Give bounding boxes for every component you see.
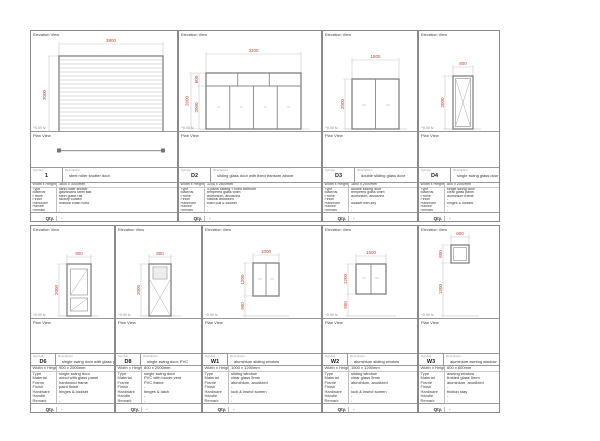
qty-value: - — [205, 216, 211, 221]
door-height-dimension: 2000 — [194, 102, 199, 113]
qty-label: Qty. — [419, 407, 445, 412]
door-code: D6 — [31, 359, 55, 365]
spec-table: Width x Height3200 x 2600mmType4-panel s… — [179, 182, 321, 212]
plan-view-label: Plan View — [33, 320, 51, 325]
floor-level-label: +0.00 lv. — [421, 126, 434, 130]
symbol-row: Symbol W2 Description aluminium sliding … — [323, 353, 417, 365]
plan-view-label: Plan View — [205, 320, 223, 325]
plan-view-cell: Plan View — [31, 318, 114, 353]
panel-door-d6: Elevation View 900 2000 +0.00 lv. Plan V… — [30, 225, 115, 413]
qty-row: Qty. - — [323, 403, 417, 414]
qty-value: - — [445, 407, 451, 412]
width-dimension: 3200 — [248, 48, 259, 53]
spec-label: Width x Height — [323, 366, 349, 371]
symbol-cell: Symbol D2 — [179, 168, 211, 182]
symbol-cell: Symbol D6 — [31, 354, 56, 365]
swing-door-elevation-drawing: 900 2000 — [31, 226, 114, 318]
door-code: D3 — [323, 173, 354, 179]
spec-value: 600 x 600mm — [445, 366, 499, 371]
spec-value: 800 x 2000mm — [445, 183, 499, 187]
plan-view-cell: Plan View — [419, 318, 499, 353]
elevation-view-cell: Elevation View 3200 2600 600 2000 +0.00 … — [179, 31, 321, 131]
elevation-view-cell: Elevation View 900 2000 +0.00 lv. — [31, 226, 114, 318]
panel-window-w1: Elevation View 1000 1200 900 +0.00 lv. P… — [202, 225, 322, 413]
spec-table: Width x Height800 x 2000mmTypesingle swi… — [116, 365, 201, 403]
floor-level-label: +0.00 lv. — [325, 313, 338, 317]
height-dimension: 1200 — [343, 273, 348, 284]
door-code: D4 — [419, 173, 450, 179]
height-dimension: 2000 — [54, 284, 59, 295]
description-cell: Description single swing door, PVC — [141, 354, 201, 365]
window-elevation-drawing: 1000 1200 900 — [203, 226, 321, 318]
width-dimension: 800 — [459, 61, 467, 66]
qty-label: Qty. — [31, 407, 57, 412]
height-dimension: 2000 — [340, 98, 345, 109]
qty-value: - — [57, 216, 63, 221]
plan-view-label: Plan View — [325, 320, 343, 325]
spec-value: 1500 x 1200mm — [349, 366, 417, 371]
spec-value: 1000 x 1200mm — [229, 366, 321, 371]
symbol-row: Symbol D8 Description single swing door,… — [116, 353, 201, 365]
sill-height-dimension: 900 — [240, 302, 245, 310]
plan-view-cell: Plan View — [419, 131, 499, 167]
qty-value: - — [349, 216, 355, 221]
spec-value: 3200 x 2600mm — [205, 183, 321, 187]
plan-view-cell: Plan View — [31, 131, 177, 167]
description-cell: Description aluminium sliding window — [348, 354, 417, 365]
qty-value: - — [445, 216, 451, 221]
door-code: D2 — [179, 173, 210, 179]
floor-level-label: +0.00 lv. — [33, 313, 46, 317]
plan-view-label: Plan View — [181, 133, 199, 138]
panel-door-d8: Elevation View 800 2000 +0.00 lv. Plan V… — [115, 225, 202, 413]
sill-height-dimension: 1500 — [438, 283, 443, 294]
sill-height-dimension: 900 — [343, 301, 348, 309]
height-dimension: 2000 — [136, 284, 141, 295]
width-dimension: 800 — [156, 251, 164, 256]
height-dimension: 2000 — [440, 97, 445, 108]
spec-value: 900 x 2000mm — [57, 366, 114, 371]
symbol-row: Symbol D3 Description double sliding gla… — [323, 167, 417, 182]
height-dimension: 1200 — [240, 274, 245, 285]
panel-door-d2: Elevation View 3200 2600 600 2000 +0.00 … — [178, 30, 322, 222]
door-code: 1 — [31, 173, 62, 179]
qty-row: Qty. - — [203, 403, 321, 414]
pvc-door-elevation-drawing: 800 2000 — [116, 226, 201, 318]
qty-label: Qty. — [116, 407, 142, 412]
spec-table: Width x Height900 x 2000mmTypesingle swi… — [31, 365, 114, 403]
elevation-view-cell: Elevation View 1800 2000 +0.00 lv. — [323, 31, 417, 131]
double-door-elevation-drawing: 1800 2000 — [323, 31, 417, 131]
width-dimension: 1800 — [370, 54, 381, 59]
width-dimension: 600 — [456, 231, 464, 236]
qty-row: Qty. - — [419, 403, 499, 414]
spec-label: Width x Height — [31, 366, 57, 371]
width-dimension: 3800 — [106, 38, 117, 43]
plan-view-cell: Plan View — [203, 318, 321, 353]
panel-window-w3: Elevation View 600 600 1500 +0.00 lv. Pl… — [418, 225, 500, 413]
floor-level-label: +0.00 lv. — [421, 313, 434, 317]
window-elevation-drawing: 600 600 1500 — [419, 226, 499, 318]
door-outline — [149, 264, 171, 316]
width-dimension: 1000 — [261, 249, 272, 254]
spec-label: Width x Height — [179, 183, 205, 187]
door-window-schedule-sheet: Elevation View 3800 3000 +0.00 lv. Plan … — [0, 0, 600, 441]
panel-door-d4: Elevation View 800 2000 +0.00 lv. Plan V… — [418, 30, 500, 222]
qty-row: Qty. - — [323, 212, 417, 223]
symbol-row: Symbol D6 Description single swing door … — [31, 353, 114, 365]
floor-level-label: +0.00 lv. — [325, 126, 338, 130]
symbol-cell: Symbol W2 — [323, 354, 348, 365]
elevation-view-cell: Elevation View 1500 1200 900 +0.00 lv. — [323, 226, 417, 318]
qty-value: - — [229, 407, 235, 412]
plan-jamb-left — [57, 149, 61, 153]
spec-value: 800 x 2000mm — [142, 366, 201, 371]
door-description: single swing door with glass panel — [62, 359, 114, 364]
qty-label: Qty. — [31, 216, 57, 221]
elevation-view-cell: Elevation View 3800 3000 +0.00 lv. — [31, 31, 177, 131]
plan-view-label: Plan View — [421, 320, 439, 325]
spec-table: Width x Height1500 x 1200mmTypesliding w… — [323, 365, 417, 403]
roller-door-plan-drawing — [31, 132, 177, 167]
total-height-dimension: 2600 — [185, 95, 190, 106]
spec-label: Width x Height — [419, 183, 445, 187]
description-cell: Description single swing glass door — [451, 168, 499, 182]
spec-table: Width x Height3800 x 3000mmTypesteel rol… — [31, 182, 177, 212]
qty-label: Qty. — [323, 407, 349, 412]
description-cell: Description double sliding glass door — [355, 168, 417, 182]
elevation-view-cell: Elevation View 600 600 1500 +0.00 lv. — [419, 226, 499, 318]
spec-label: Width x Height — [323, 183, 349, 187]
qty-value: - — [57, 407, 63, 412]
symbol-row: Symbol W3 Description aluminium awning w… — [419, 353, 499, 365]
plan-view-label: Plan View — [118, 320, 136, 325]
qty-label: Qty. — [419, 216, 445, 221]
spec-table: Width x Height800 x 2000mmTypesingle swi… — [419, 182, 499, 212]
qty-value: - — [142, 407, 148, 412]
spec-label: Width x Height — [419, 366, 445, 371]
spec-table: Width x Height1800 x 2000mmTypedouble sl… — [323, 182, 417, 212]
door-description: steel roller shutter door — [69, 173, 177, 178]
plan-door-line — [59, 150, 163, 151]
qty-value: - — [349, 407, 355, 412]
roller-door-elevation-drawing: 3800 3000 — [31, 31, 177, 131]
panel-door-1: Elevation View 3800 3000 +0.00 lv. Plan … — [30, 30, 178, 222]
elevation-view-cell: Elevation View 800 2000 +0.00 lv. — [116, 226, 201, 318]
qty-row: Qty. - — [116, 403, 201, 414]
spec-label: Width x Height — [31, 183, 57, 187]
single-door-elevation-drawing: 800 2000 — [419, 31, 499, 131]
window-code: W1 — [203, 359, 227, 365]
transom-height-dimension: 600 — [194, 75, 199, 83]
window-code: W3 — [419, 359, 443, 365]
sliding-door-elevation-drawing: 3200 2600 600 2000 — [179, 31, 321, 131]
window-elevation-drawing: 1500 1200 900 — [323, 226, 417, 318]
spec-value: 3800 x 3000mm — [57, 183, 177, 187]
symbol-row: Symbol D4 Description single swing glass… — [419, 167, 499, 182]
window-description: aluminium awning window — [450, 359, 499, 364]
description-cell: Description aluminium sliding window — [228, 354, 321, 365]
qty-row: Qty. - — [419, 212, 499, 223]
window-code: W2 — [323, 359, 347, 365]
symbol-cell: Symbol W3 — [419, 354, 444, 365]
symbol-cell: Symbol W1 — [203, 354, 228, 365]
door-description: double sliding glass door — [361, 173, 417, 178]
spec-value: 1800 x 2000mm — [349, 183, 417, 187]
symbol-cell: Symbol 1 — [31, 168, 63, 182]
floor-level-label: +0.00 lv. — [181, 126, 194, 130]
door-description: single swing door, PVC — [147, 359, 201, 364]
plan-view-cell: Plan View — [179, 131, 321, 167]
description-cell: Description sliding glass door with fixe… — [211, 168, 321, 182]
qty-row: Qty. - — [179, 212, 321, 223]
height-dimension: 3000 — [42, 89, 47, 100]
floor-level-label: +0.00 lv. — [33, 126, 46, 130]
symbol-row: Symbol 1 Description steel roller shutte… — [31, 167, 177, 182]
symbol-cell: Symbol D3 — [323, 168, 355, 182]
elevation-view-cell: Elevation View 800 2000 +0.00 lv. — [419, 31, 499, 131]
door-description: single swing glass door — [457, 173, 499, 178]
plan-view-cell: Plan View — [116, 318, 201, 353]
plan-view-label: Plan View — [325, 133, 343, 138]
symbol-cell: Symbol D4 — [419, 168, 451, 182]
qty-label: Qty. — [323, 216, 349, 221]
door-code: D8 — [116, 359, 140, 365]
door-description: sliding glass door with fixed transom ab… — [217, 173, 321, 178]
plan-view-cell: Plan View — [323, 131, 417, 167]
spec-table: Width x Height1000 x 1200mmTypesliding w… — [203, 365, 321, 403]
qty-label: Qty. — [203, 407, 229, 412]
window-description: aluminium sliding window — [354, 359, 417, 364]
plan-view-label: Plan View — [421, 133, 439, 138]
description-cell: Description single swing door with glass… — [56, 354, 114, 365]
description-cell: Description steel roller shutter door — [63, 168, 177, 182]
plan-jamb-right — [161, 149, 165, 153]
qty-row: Qty. - — [31, 403, 114, 414]
spec-label: Width x Height — [116, 366, 142, 371]
height-dimension: 600 — [438, 250, 443, 258]
qty-label: Qty. — [179, 216, 205, 221]
qty-row: Qty. - — [31, 212, 177, 223]
panel-window-w2: Elevation View 1500 1200 900 +0.00 lv. P… — [322, 225, 418, 413]
spec-table: Width x Height600 x 600mmTypeawning wind… — [419, 365, 499, 403]
description-cell: Description aluminium awning window — [444, 354, 499, 365]
elevation-view-cell: Elevation View 1000 1200 900 +0.00 lv. — [203, 226, 321, 318]
panel-door-d3: Elevation View 1800 2000 +0.00 lv. Plan … — [322, 30, 418, 222]
symbol-row: Symbol D2 Description sliding glass door… — [179, 167, 321, 182]
width-dimension: 900 — [75, 251, 83, 256]
width-dimension: 1500 — [366, 250, 377, 255]
window-description: aluminium sliding window — [234, 359, 321, 364]
symbol-cell: Symbol D8 — [116, 354, 141, 365]
symbol-row: Symbol W1 Description aluminium sliding … — [203, 353, 321, 365]
plan-view-cell: Plan View — [323, 318, 417, 353]
spec-label: Width x Height — [203, 366, 229, 371]
floor-level-label: +0.00 lv. — [118, 313, 131, 317]
floor-level-label: +0.00 lv. — [205, 313, 218, 317]
